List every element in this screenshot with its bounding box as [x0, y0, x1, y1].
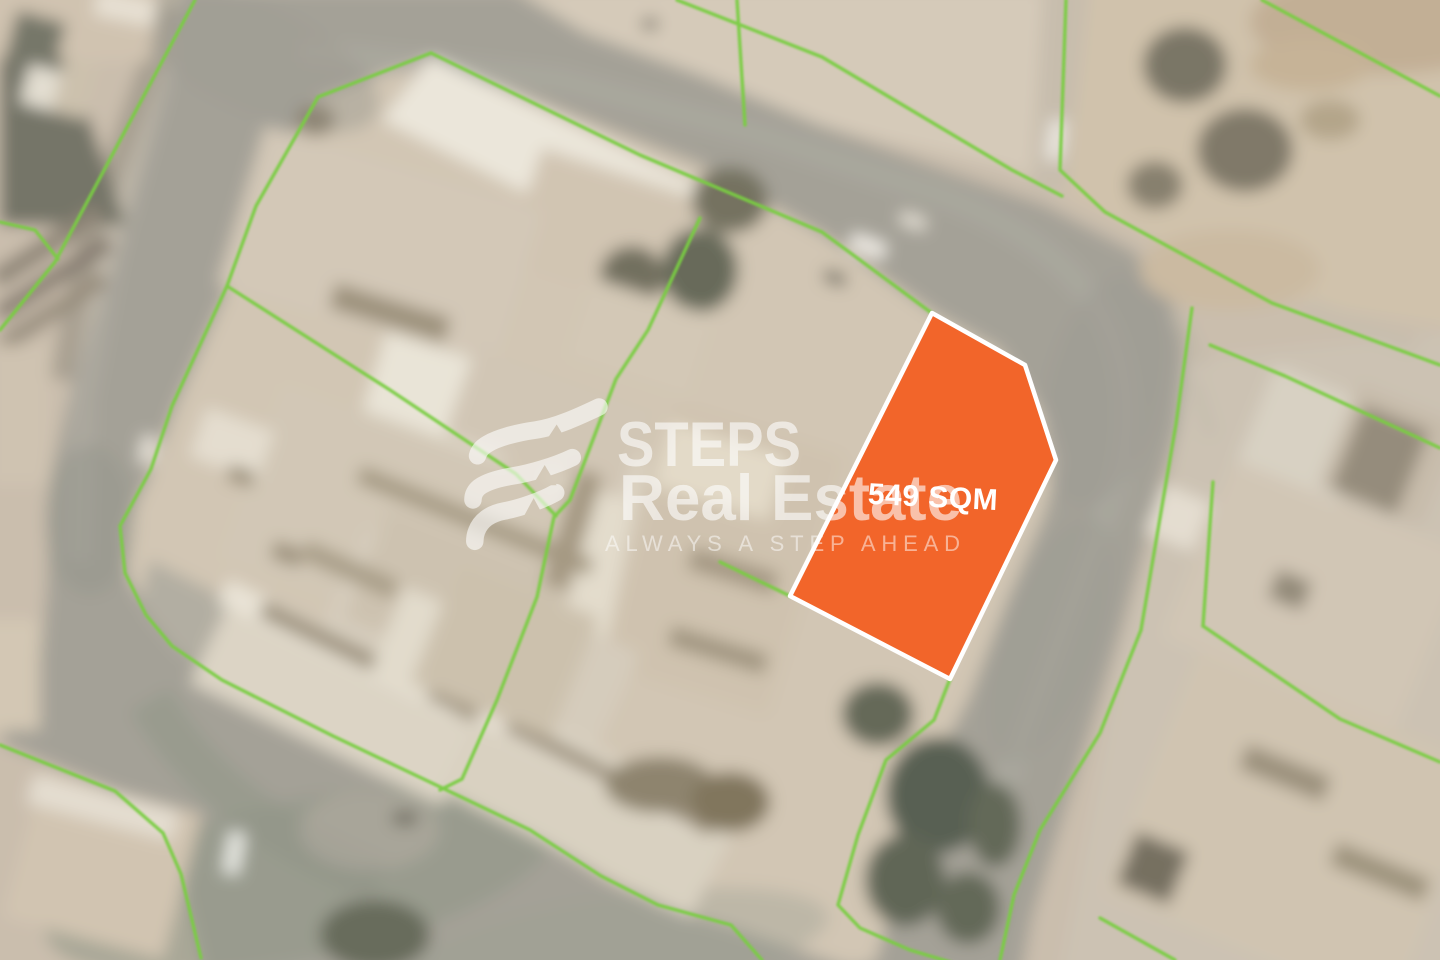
- svg-text:549 SQM: 549 SQM: [867, 478, 999, 517]
- svg-text:ALWAYS A STEP AHEAD: ALWAYS A STEP AHEAD: [605, 531, 960, 556]
